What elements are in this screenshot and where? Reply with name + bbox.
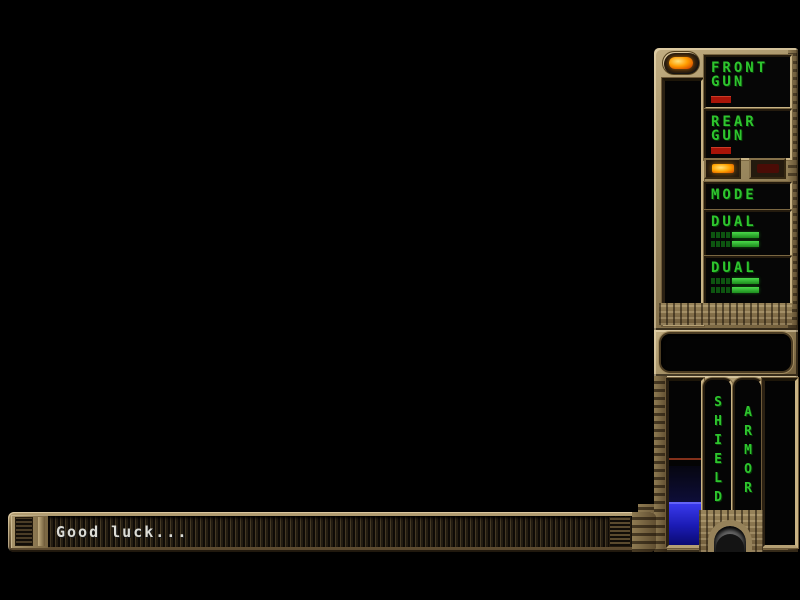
- game-screen: FRONTGUN REARGUN MODE DUAL: [0, 0, 800, 600]
- message-bar: Good luck...: [8, 512, 656, 552]
- dual-top-bright-bar: [732, 232, 759, 238]
- mode-lights: [704, 158, 788, 180]
- message-text: Good luck...: [56, 523, 188, 541]
- rear-gun-power-bar: [711, 147, 731, 154]
- front-gun-power-bar: [711, 96, 731, 103]
- shield-label: SHIELD: [711, 393, 725, 507]
- mode-light-left: [704, 158, 741, 179]
- speaker-grille-icon: [16, 518, 32, 545]
- shield-marker-line: [669, 458, 701, 460]
- mode-panel: MODE: [704, 182, 792, 211]
- dual-bottom-bar-row: [711, 287, 785, 293]
- message-bar-right-cap: [632, 512, 656, 552]
- dual-top-label: DUAL: [711, 215, 757, 229]
- front-gun-label: FRONTGUN: [711, 61, 768, 89]
- thruster-arch-base: [699, 510, 763, 552]
- power-led-indicator: [663, 52, 699, 74]
- armor-label-panel: ARMOR: [733, 378, 763, 522]
- hinge-detail: [38, 517, 45, 546]
- status-panel: SHIELD ARMOR: [654, 376, 798, 552]
- mode-light-left-core: [712, 164, 734, 173]
- dual-bottom-bars: [711, 278, 785, 296]
- mode-label: MODE: [711, 188, 757, 202]
- dual-bottom-bar-row: [711, 278, 785, 284]
- weapon-panel: FRONTGUN REARGUN MODE DUAL: [654, 48, 798, 330]
- message-bar-left-cap: [11, 515, 48, 548]
- front-gun-panel: FRONTGUN: [704, 55, 792, 109]
- circuitry-greeble: [659, 303, 792, 325]
- dual-mode-panel-bottom: DUAL: [704, 256, 792, 305]
- mode-light-right-core: [757, 164, 779, 173]
- shield-dim-zone: [669, 466, 701, 502]
- dual-top-bars: [711, 232, 785, 250]
- dual-bottom-bright-bar: [732, 278, 759, 284]
- power-led-core: [669, 57, 693, 69]
- dual-top-bright-bar: [732, 241, 759, 247]
- armor-gauge: [762, 378, 798, 548]
- weapon-readouts: FRONTGUN REARGUN MODE DUAL: [704, 48, 792, 330]
- dual-top-bar-row: [711, 241, 785, 247]
- dual-bottom-label: DUAL: [711, 261, 757, 275]
- playfield[interactable]: [0, 0, 654, 512]
- energy-gauge: [662, 78, 704, 326]
- radar-display-section: [654, 330, 798, 376]
- dual-top-bar-row: [711, 232, 785, 238]
- rear-gun-panel: REARGUN: [704, 109, 792, 160]
- dual-mode-panel-top: DUAL: [704, 210, 792, 257]
- dual-bottom-bright-bar: [732, 287, 759, 293]
- rear-gun-label: REARGUN: [711, 115, 757, 143]
- radar-display: [661, 334, 791, 371]
- shield-gauge-fill: [669, 502, 701, 545]
- vent-grille-icon: [610, 518, 630, 546]
- mode-light-right: [749, 158, 786, 179]
- shield-label-panel: SHIELD: [703, 378, 733, 522]
- armor-label: ARMOR: [741, 403, 755, 498]
